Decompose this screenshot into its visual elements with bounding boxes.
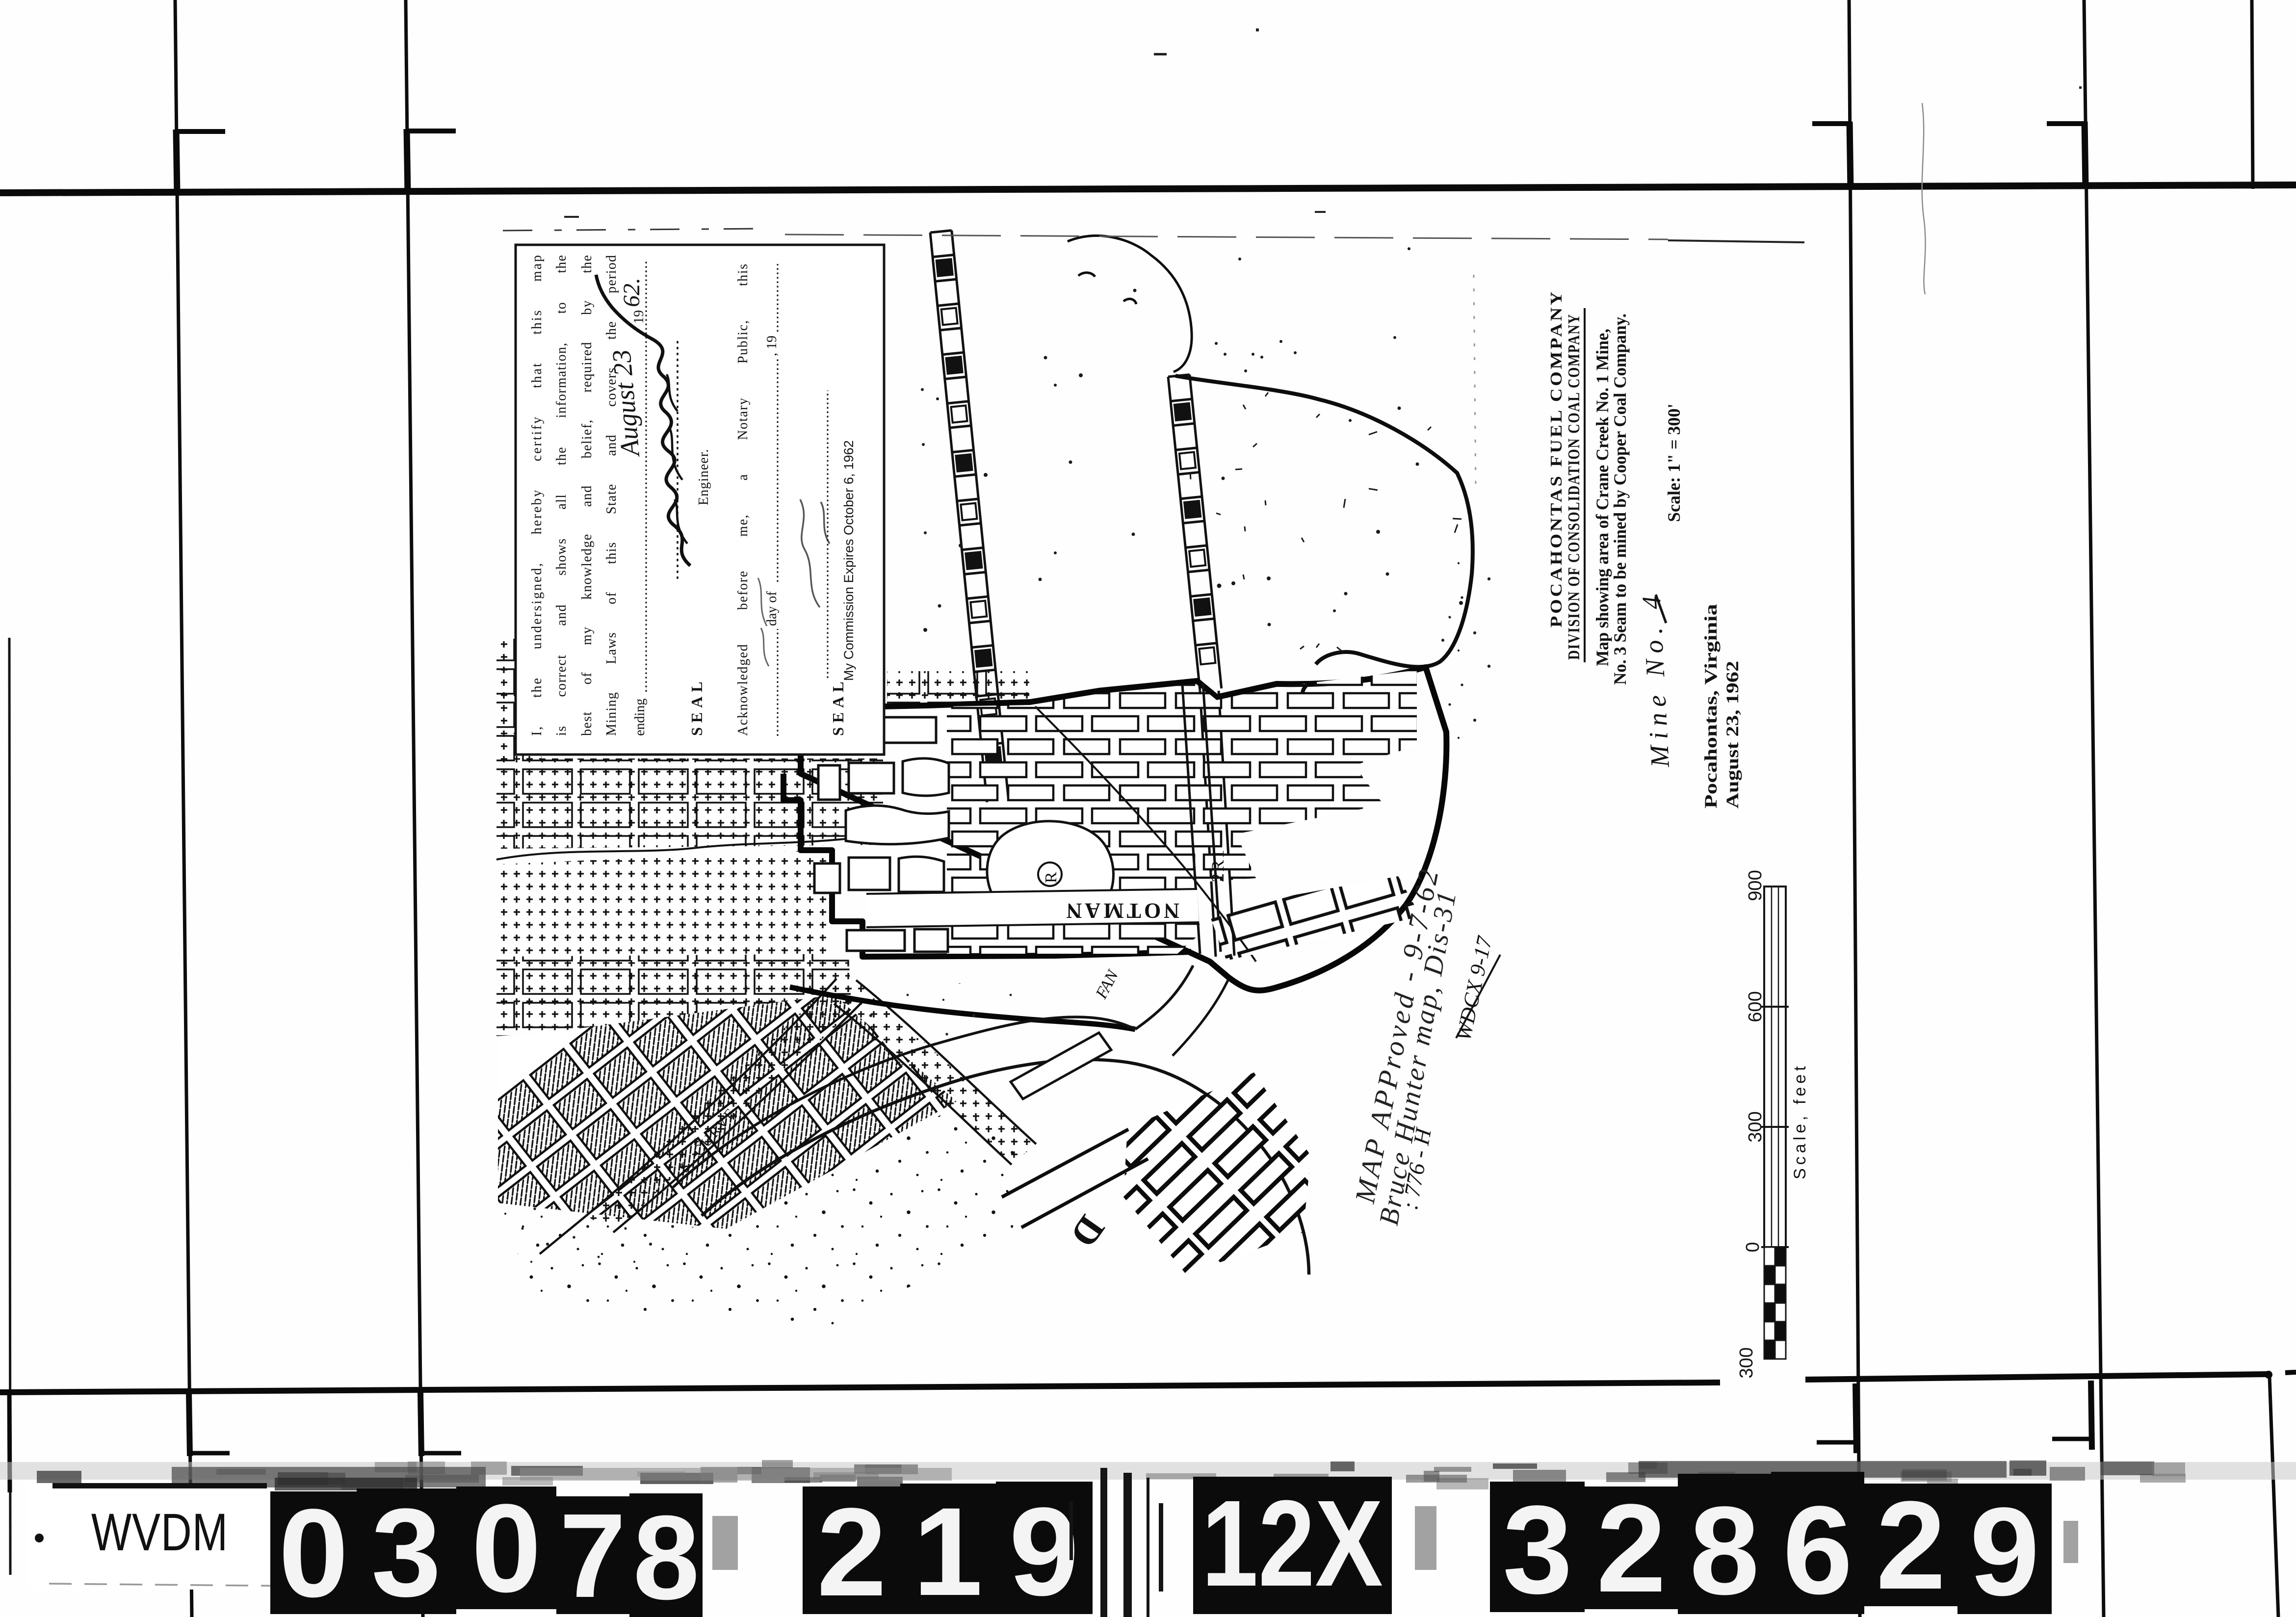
svg-text:day of: day of [764, 591, 780, 626]
svg-text:300: 300 [1736, 1347, 1757, 1378]
svg-text:2: 2 [1596, 1478, 1666, 1617]
svg-text:Acknowledged before me, a Nota: Acknowledged before me, a Notary Public,… [735, 264, 751, 736]
svg-text:best of my knowledge and belie: best of my knowledge and belief, require… [579, 255, 595, 736]
svg-text:300: 300 [1745, 1111, 1766, 1142]
svg-text:POCAHONTAS FUEL COMPANY: POCAHONTAS FUEL COMPANY [1547, 289, 1565, 627]
svg-text:Scale: 1" = 300': Scale: 1" = 300' [1664, 404, 1684, 522]
svg-text:I, the undersigned, hereby cer: I, the undersigned, hereby certify that … [529, 255, 545, 736]
svg-text:8: 8 [1690, 1481, 1759, 1617]
svg-text:3: 3 [371, 1483, 441, 1617]
svg-text:WVDM: WVDM [91, 1502, 228, 1562]
svg-text:R: R [1042, 872, 1060, 883]
svg-text:1: 1 [913, 1482, 983, 1617]
svg-text:ending: ending [632, 699, 648, 736]
svg-text:600: 600 [1745, 991, 1766, 1022]
svg-text:19: 19 [631, 310, 647, 324]
svg-text:2R1: 2R1 [1208, 848, 1227, 882]
svg-text:August 23, 1962: August 23, 1962 [1722, 661, 1742, 808]
svg-text:Engineer.: Engineer. [696, 448, 711, 505]
svg-text:900: 900 [1745, 870, 1766, 901]
svg-text:8: 8 [633, 1490, 700, 1617]
svg-text:SEAL: SEAL [688, 677, 705, 736]
svg-text:, 19: , 19 [764, 336, 780, 356]
svg-text:NOTMAN: NOTMAN [1064, 899, 1179, 923]
svg-text:No. 3 Seam to be mined by Coop: No. 3 Seam to be mined by Cooper Coal Co… [1610, 313, 1630, 685]
svg-text:0: 0 [471, 1478, 541, 1617]
svg-text:Mining Laws of this State and: Mining Laws of this State and covers the… [604, 255, 619, 736]
svg-text:DIVISION OF CONSOLIDATION COAL: DIVISION OF CONSOLIDATION COAL COMPANY [1565, 313, 1583, 660]
svg-text:SEAL: SEAL [829, 677, 847, 736]
svg-text:2: 2 [1876, 1475, 1946, 1616]
svg-text:62.: 62. [619, 278, 645, 307]
svg-text:My Commission Expires October: My Commission Expires October 6, 1962 [841, 440, 856, 681]
svg-text:2: 2 [817, 1482, 887, 1617]
svg-text:Map showing area of Crane Cree: Map showing area of Crane Creek No. 1 Mi… [1592, 329, 1612, 666]
svg-text:6: 6 [1783, 1480, 1852, 1617]
svg-text:12X: 12X [1201, 1475, 1383, 1612]
svg-text:0: 0 [279, 1483, 348, 1617]
svg-text:9: 9 [1970, 1482, 2039, 1617]
svg-text:9: 9 [1009, 1482, 1079, 1617]
svg-text:Pocahontas, Virginia: Pocahontas, Virginia [1701, 604, 1721, 808]
svg-text:7: 7 [559, 1488, 626, 1617]
svg-text:0: 0 [1743, 1242, 1763, 1252]
svg-text:is correct and shows all the i: is correct and shows all the information… [554, 255, 569, 736]
svg-text:3: 3 [1503, 1480, 1572, 1617]
svg-text:Scale, feet: Scale, feet [1791, 1063, 1809, 1179]
